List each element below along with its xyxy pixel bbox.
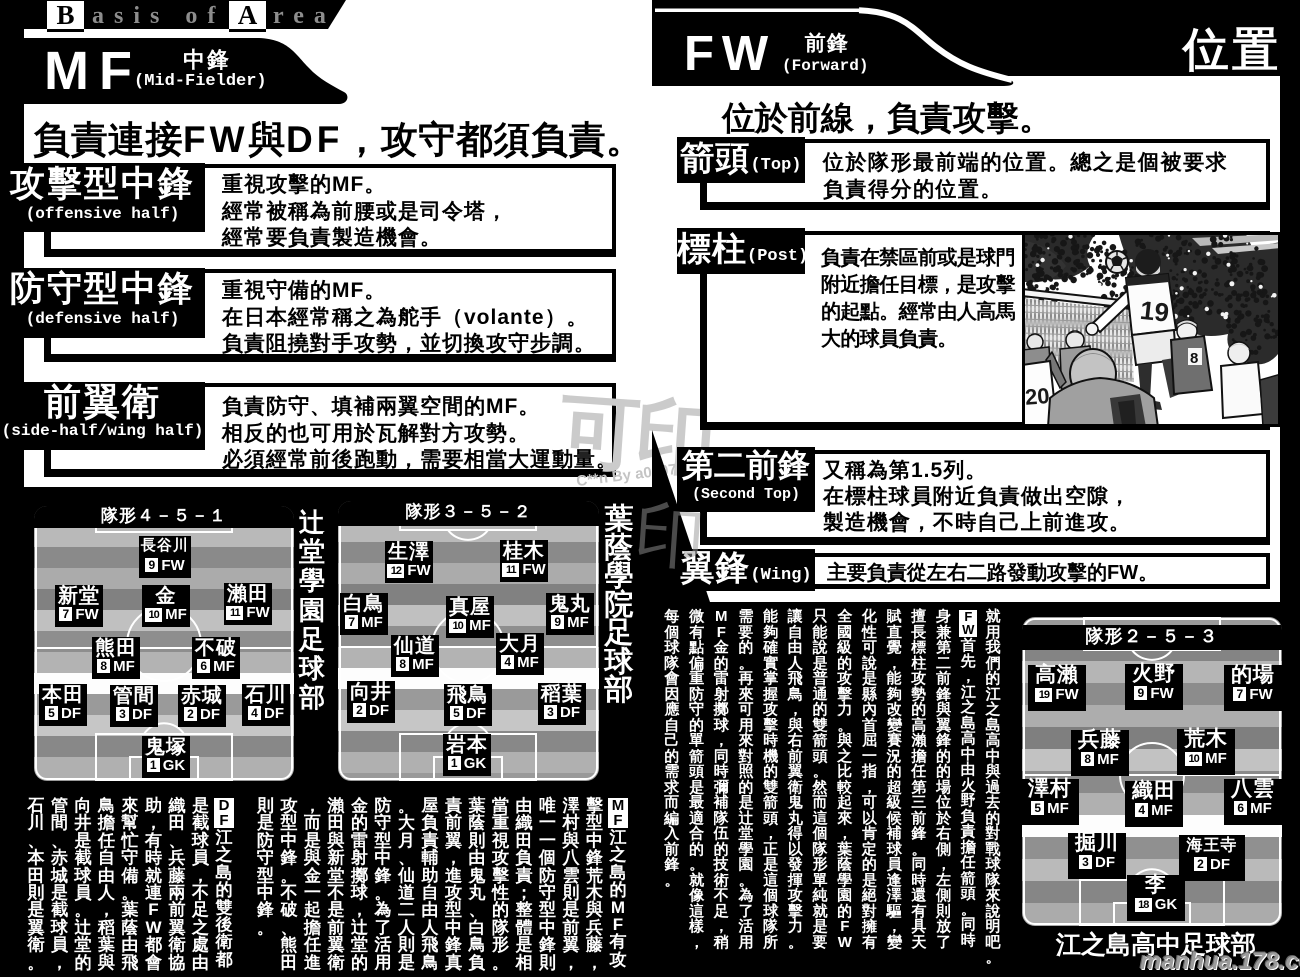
svg-text:8: 8 [1190,350,1198,367]
svg-text:20: 20 [1024,383,1050,410]
svg-text:19: 19 [1139,295,1171,328]
